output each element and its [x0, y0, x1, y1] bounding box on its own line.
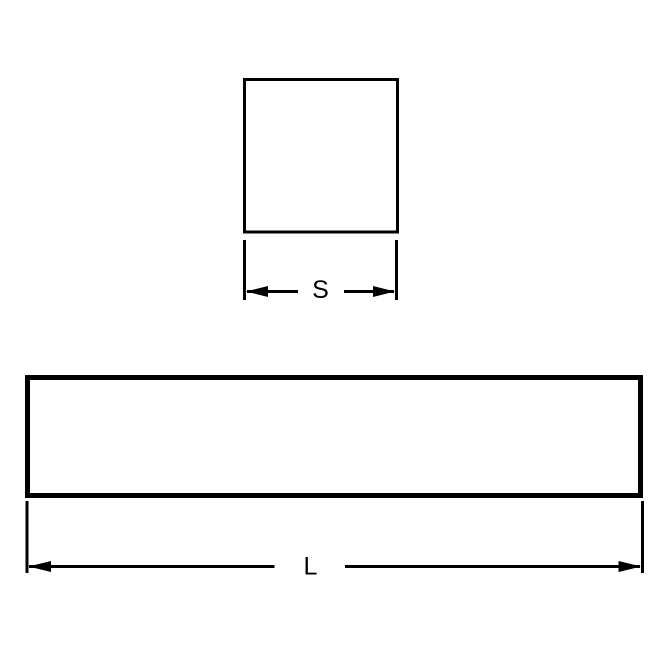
svg-text:L: L [304, 553, 318, 581]
svg-text:S: S [312, 276, 329, 304]
